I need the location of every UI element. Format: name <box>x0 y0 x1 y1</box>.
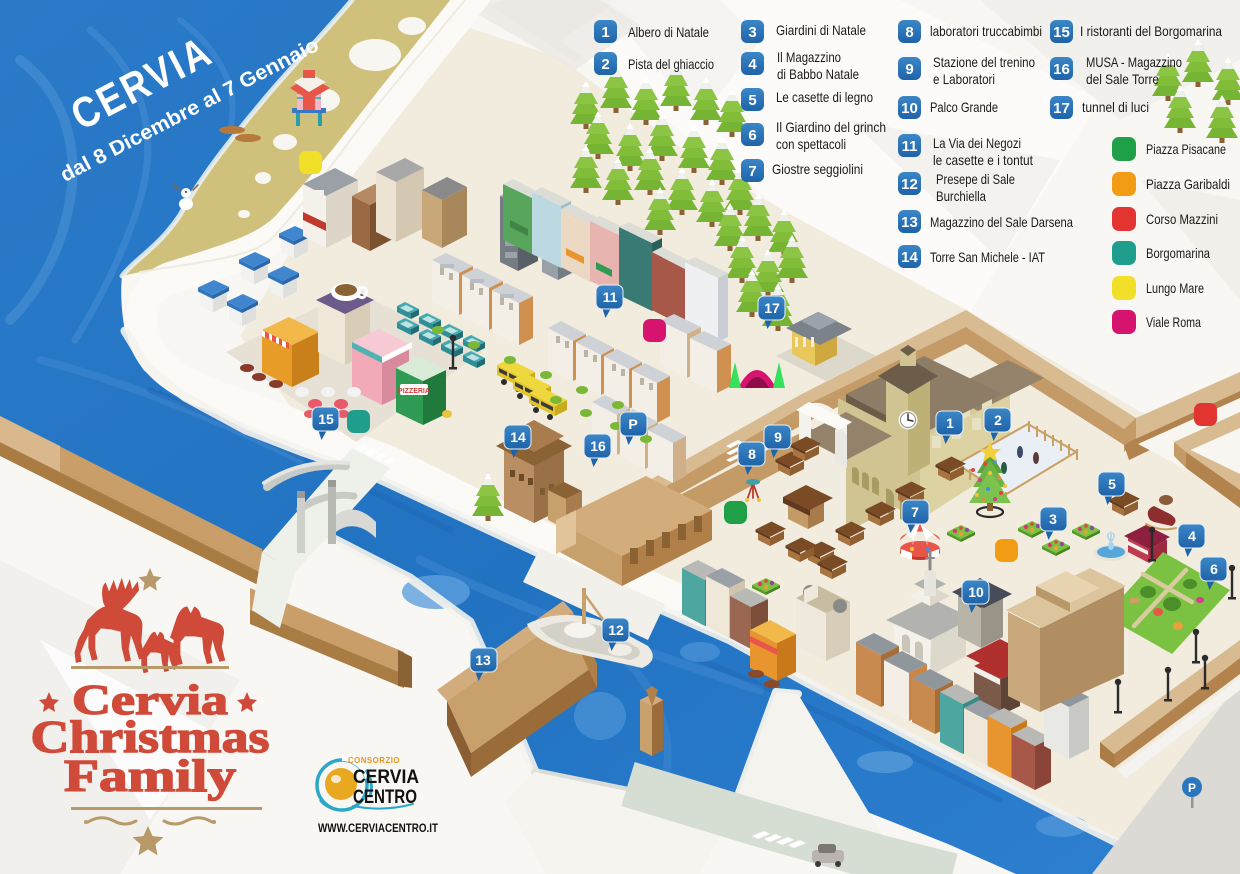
svg-text:tunnel di luci: tunnel di luci <box>1082 99 1149 115</box>
svg-text:13: 13 <box>901 214 918 231</box>
svg-text:La Via dei Negozi: La Via dei Negozi <box>933 135 1021 151</box>
svg-text:4: 4 <box>748 56 757 73</box>
svg-text:P: P <box>628 416 637 432</box>
svg-text:7: 7 <box>911 504 919 520</box>
svg-text:Viale Roma: Viale Roma <box>1146 314 1201 330</box>
svg-text:17: 17 <box>1053 100 1070 117</box>
svg-text:4: 4 <box>1188 528 1196 544</box>
svg-text:11: 11 <box>603 289 618 305</box>
svg-text:2: 2 <box>601 56 609 73</box>
svg-text:Corso Mazzini: Corso Mazzini <box>1146 211 1218 227</box>
svg-text:Piazza Garibaldi: Piazza Garibaldi <box>1146 176 1230 192</box>
svg-text:6: 6 <box>1210 561 1218 577</box>
svg-text:9: 9 <box>905 61 913 78</box>
svg-text:Le casette di legno: Le casette di legno <box>776 89 873 105</box>
svg-text:14: 14 <box>901 249 918 266</box>
svg-text:15: 15 <box>318 411 334 427</box>
svg-text:13: 13 <box>475 652 491 668</box>
svg-text:laboratori truccabimbi: laboratori truccabimbi <box>930 23 1042 39</box>
svg-text:12: 12 <box>901 176 918 193</box>
svg-text:CONSORZIO: CONSORZIO <box>348 755 400 765</box>
svg-text:16: 16 <box>590 438 606 454</box>
svg-text:Giardini di Natale: Giardini di Natale <box>776 22 866 38</box>
svg-text:3: 3 <box>748 24 756 41</box>
svg-text:Burchiella: Burchiella <box>936 188 986 204</box>
svg-text:I ristoranti del Borgomarina: I ristoranti del Borgomarina <box>1080 23 1222 39</box>
svg-text:10: 10 <box>901 100 918 117</box>
svg-text:Palco Grande: Palco Grande <box>930 99 998 115</box>
svg-text:e Laboratori: e Laboratori <box>933 71 995 87</box>
svg-text:Stazione del trenino: Stazione del trenino <box>933 54 1035 70</box>
svg-text:8: 8 <box>748 446 756 462</box>
svg-text:14: 14 <box>510 429 526 445</box>
svg-text:Albero di Natale: Albero di Natale <box>628 24 709 40</box>
svg-text:7: 7 <box>748 163 756 180</box>
svg-text:Magazzino del Sale Darsena: Magazzino del Sale Darsena <box>930 214 1073 230</box>
svg-text:del Sale Torre: del Sale Torre <box>1086 71 1159 87</box>
svg-text:Family: Family <box>64 750 236 801</box>
svg-text:11: 11 <box>902 138 918 155</box>
svg-text:2: 2 <box>994 412 1002 428</box>
svg-text:CERVIA: CERVIA <box>353 767 419 788</box>
svg-text:Giostre seggiolini: Giostre seggiolini <box>772 161 863 177</box>
svg-text:1: 1 <box>601 24 609 41</box>
svg-text:1: 1 <box>946 415 954 431</box>
svg-text:Torre San Michele - IAT: Torre San Michele - IAT <box>930 249 1045 265</box>
svg-text:8: 8 <box>905 24 913 41</box>
svg-text:Borgomarina: Borgomarina <box>1146 245 1210 261</box>
svg-text:6: 6 <box>748 127 756 144</box>
svg-text:WWW.CERVIACENTRO.IT: WWW.CERVIACENTRO.IT <box>318 821 439 835</box>
svg-text:10: 10 <box>968 584 984 600</box>
svg-text:16: 16 <box>1053 61 1070 78</box>
svg-text:9: 9 <box>774 429 782 445</box>
svg-text:di Babbo Natale: di Babbo Natale <box>777 66 859 82</box>
svg-text:3: 3 <box>1049 511 1057 527</box>
svg-text:12: 12 <box>608 622 624 638</box>
svg-text:Presepe di Sale: Presepe di Sale <box>936 171 1015 187</box>
svg-text:Piazza Pisacane: Piazza Pisacane <box>1146 141 1226 157</box>
svg-text:17: 17 <box>764 300 780 316</box>
svg-text:Il Magazzino: Il Magazzino <box>777 49 841 65</box>
svg-text:MUSA - Magazzino: MUSA - Magazzino <box>1086 54 1182 70</box>
svg-text:5: 5 <box>748 92 756 109</box>
svg-text:P: P <box>1188 781 1196 795</box>
svg-text:5: 5 <box>1108 476 1116 492</box>
svg-text:PIZZERIA: PIZZERIA <box>398 388 430 395</box>
svg-text:Lungo Mare: Lungo Mare <box>1146 280 1204 296</box>
svg-text:Pista del ghiaccio: Pista del ghiaccio <box>628 56 714 72</box>
svg-text:le casette e i tontut: le casette e i tontut <box>933 152 1033 168</box>
svg-text:Il Giardino del grinch: Il Giardino del grinch <box>776 119 886 135</box>
svg-text:15: 15 <box>1053 24 1070 41</box>
svg-text:con spettacoli: con spettacoli <box>776 136 846 152</box>
